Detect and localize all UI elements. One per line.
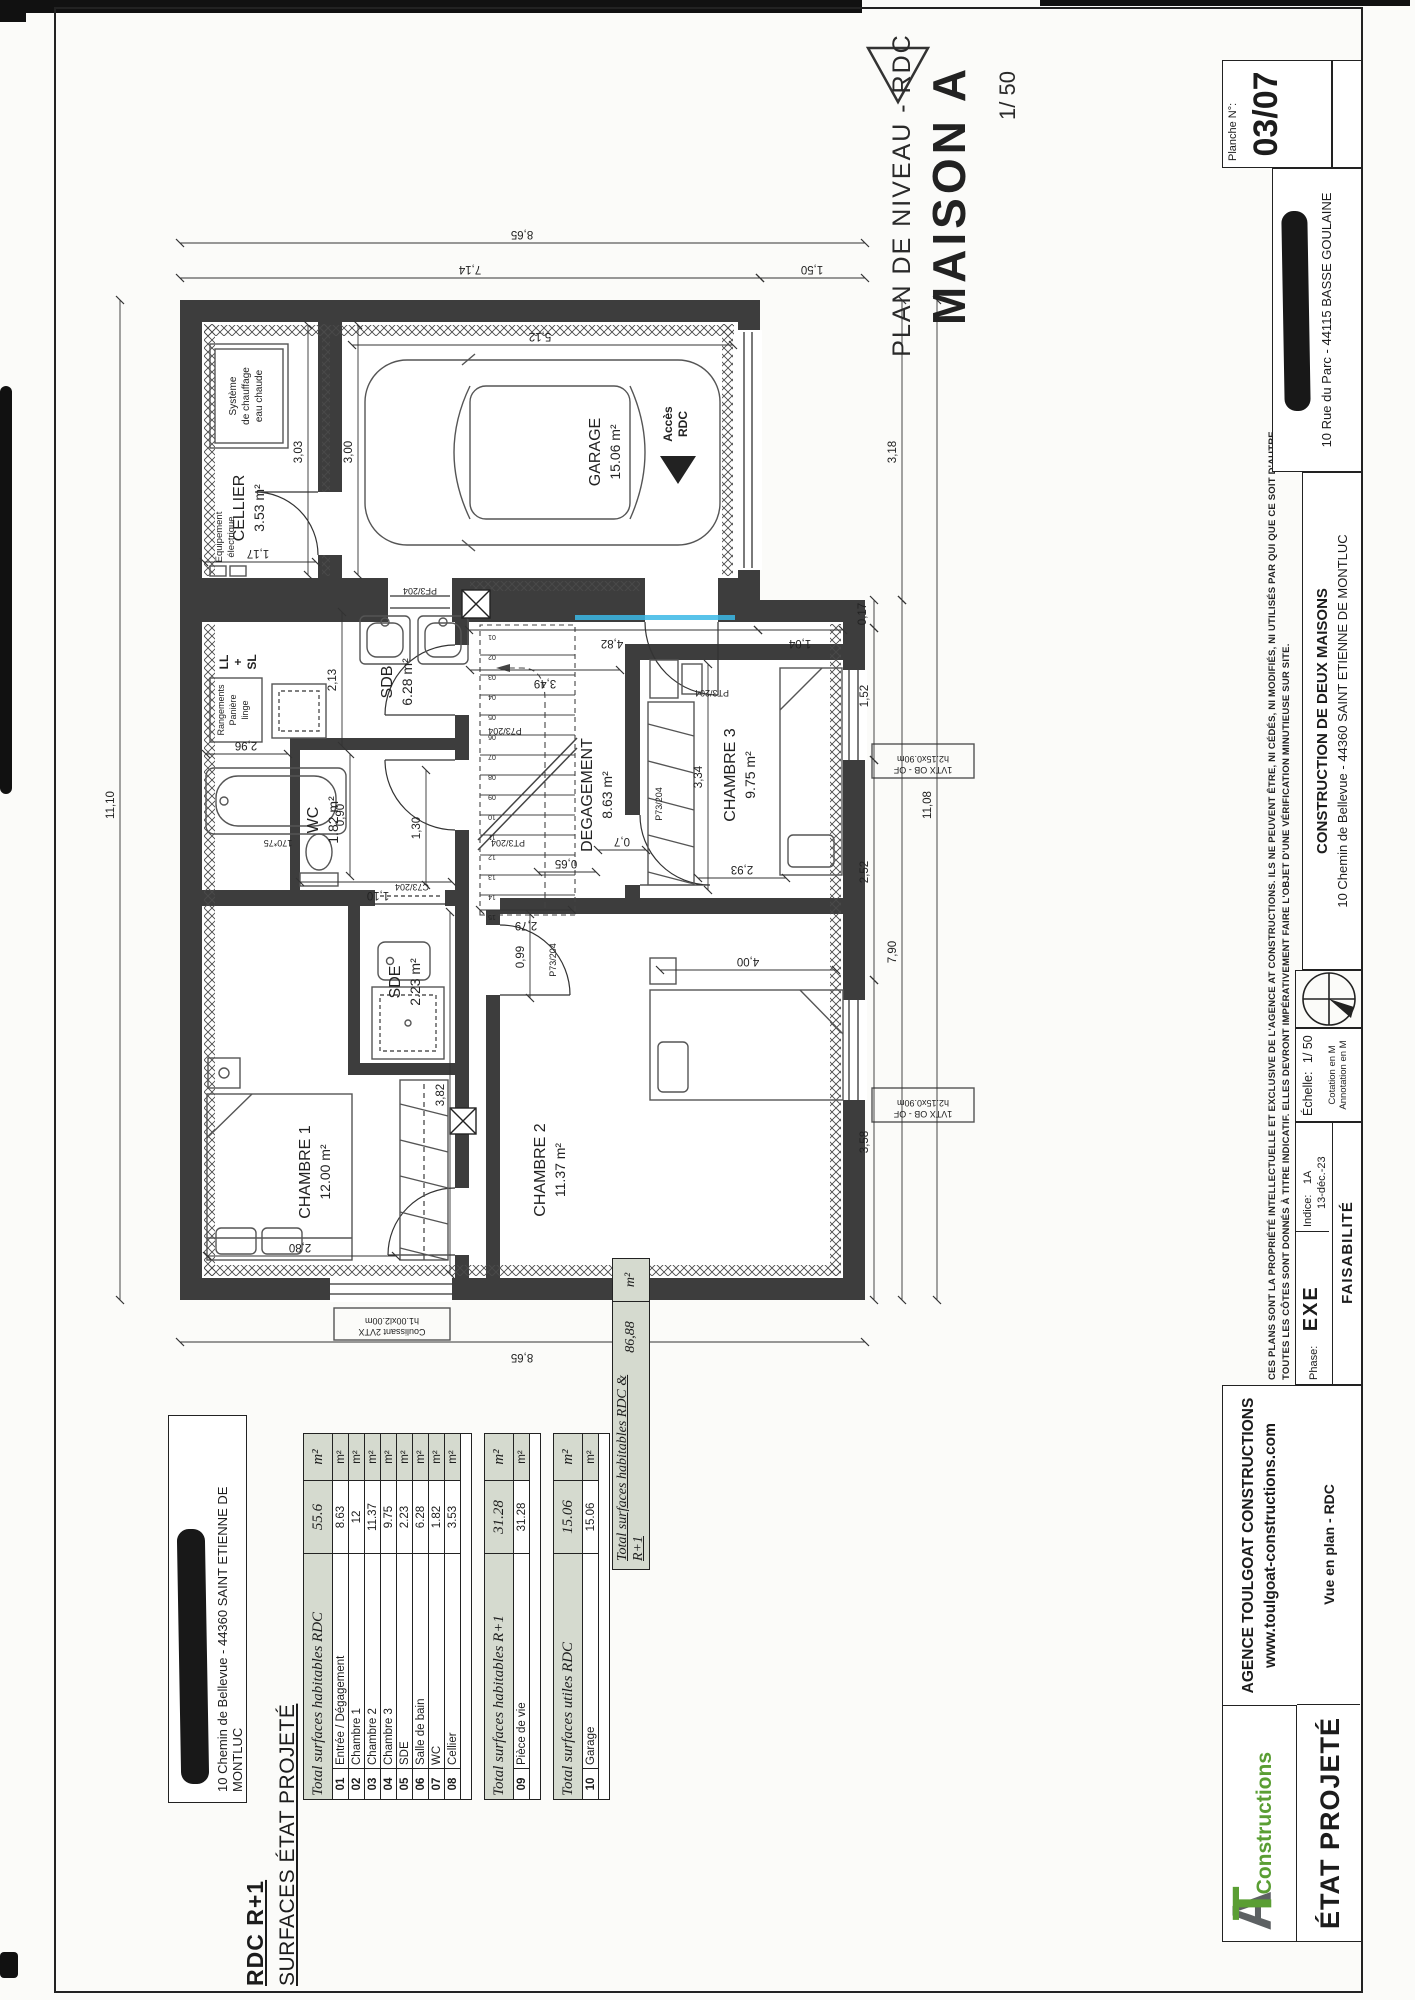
phase-value: EXE	[1300, 1285, 1322, 1331]
room-area-degagement: 8.63 m²	[599, 771, 615, 819]
dim-d512: 5,12	[529, 330, 551, 342]
dim-d714: 7,14	[458, 263, 481, 275]
grand-total-label: Total surfaces habitables RDC & R+1	[615, 1372, 647, 1569]
heading-rdc-r1: RDC R+1	[242, 1880, 269, 1986]
planche-number: 03/07	[1247, 61, 1286, 167]
titleblock-planche-box: Planche N°: 03/07	[1222, 60, 1332, 168]
walls-group	[180, 300, 865, 1300]
redacted-owner-name	[1281, 211, 1310, 411]
heater-label: Système	[228, 376, 239, 415]
dim-d130: 1,30	[411, 817, 423, 839]
table-row: 01Entrée / Dégagement8.63m²	[333, 1434, 349, 1800]
dim-d790: 7,90	[887, 941, 899, 963]
redacted-client-name	[177, 1529, 209, 1784]
duct-symbol-2	[450, 1108, 476, 1134]
stair-number: 11	[488, 833, 495, 840]
stair-number: 12	[488, 853, 496, 860]
tub-size-label: 170*75	[264, 838, 293, 848]
table-row: 10Garage15.06m²	[583, 1434, 599, 1800]
stair-number: 14	[488, 893, 496, 900]
heater-label: eau chaude	[254, 369, 265, 422]
dim-d482: 4,82	[601, 637, 623, 649]
window-label-coul: Coulissant 2VTX	[358, 1327, 425, 1337]
dim-d065: 0,65	[555, 857, 577, 869]
door-label-c73sde: C73/204	[395, 882, 429, 892]
project-address: 10 Chemin de Bellevue - 44360 SAINT ETIE…	[1335, 473, 1350, 969]
window-label-w1: 1VTX OB - OF	[893, 1109, 952, 1119]
dim-d865R: 8,65	[511, 228, 533, 240]
table-row: 04Chambre 39.75m²	[381, 1434, 397, 1800]
grand-total-unit: m²	[613, 1259, 649, 1302]
rangements-label: linge	[240, 700, 250, 719]
acces-rdc-label: Accès	[661, 406, 675, 442]
room-label-ch2: CHAMBRE 2	[532, 1123, 549, 1216]
project-title: CONSTRUCTION DE DEUX MAISONS	[1314, 473, 1331, 969]
room-label-garage: GARAGE	[587, 418, 604, 486]
ll-sl-label: LL	[217, 655, 231, 670]
dim-d334: 3,34	[693, 765, 705, 788]
vue-en-plan-label: Vue en plan - RDC	[1321, 1484, 1337, 1605]
stair-number: 02	[488, 653, 496, 660]
logo-cell: ATConstructions	[1223, 1705, 1297, 1941]
disclaimer-line-1: CES PLANS SONT LA PROPRIÉTÉ INTELLECTUEL…	[1266, 428, 1279, 1380]
elec-label: Equipement	[214, 511, 225, 562]
disclaimer-line-2: TOUTES LES CÔTES SONT DONNÉS À TITRE IND…	[1280, 643, 1293, 1380]
titleblock-echelle-box: Échelle: 1/ 50 Cotation en M Annotation …	[1295, 1028, 1362, 1122]
dim-d300: 3,00	[343, 441, 355, 463]
echelle-label: Échelle:	[1301, 1072, 1315, 1116]
dim-d117: 1,17	[247, 547, 269, 559]
table-row: 07WC1.82m²	[429, 1434, 445, 1800]
faisabilite-label: FAISABILITÉ	[1332, 1121, 1356, 1384]
rangements-label: Panière	[228, 694, 238, 725]
dim-d382: 3,82	[435, 1084, 447, 1106]
elec-label: électrique	[226, 516, 237, 557]
annotation-label: Annotation en M	[1338, 1029, 1349, 1121]
room-area-garage: 15.06 m²	[607, 424, 623, 480]
surfaces-tables: Total surfaces habitables RDC55.6m²01Ent…	[303, 1433, 622, 1800]
drawing-sheet: 11,108,657,141,508,6511,087,903,183,582,…	[0, 0, 1415, 2000]
titleblock-agency-box: ATConstructions AGENCE TOULGOAT CONSTRUC…	[1222, 1385, 1362, 1942]
client-box: 10 Chemin de Bellevue - 44360 SAINT ETIE…	[168, 1415, 247, 1803]
room-label-sdb: SDB	[379, 666, 396, 699]
stair-number: 08	[488, 773, 496, 780]
window-label-w1-size: h2.15x0.90m	[897, 1098, 949, 1108]
room-area-cellier: 3.53 m²	[251, 484, 267, 532]
titleblock-planche-footer	[1332, 60, 1362, 168]
cotation-label: Cotation en M	[1327, 1029, 1338, 1121]
room-area-sde: 2.23 m²	[407, 958, 423, 1006]
dim-d303: 3,03	[293, 441, 305, 463]
surfaces-table-1: Total surfaces habitables RDC55.6m²01Ent…	[303, 1433, 472, 1800]
duct-symbol-1	[462, 590, 490, 618]
logo-constructions: Constructions	[1253, 1752, 1276, 1894]
stair-number: 10	[488, 813, 496, 820]
surfaces-table-2: Total surfaces habitables R+131.28m²09Pi…	[484, 1433, 541, 1800]
dim-d150: 1,50	[801, 263, 823, 275]
echelle-value: 1/ 50	[1301, 1035, 1315, 1063]
stair-number: 05	[488, 713, 496, 720]
table-row: 08Cellier3.53m²	[445, 1434, 461, 1800]
stair-number: 07	[488, 753, 496, 760]
room-label-wc: WC	[305, 807, 322, 834]
dim-d1110: 11,10	[105, 791, 117, 819]
ll-sl-label: +	[231, 658, 245, 665]
indice-label: Indice:	[1302, 1195, 1314, 1227]
stair-number: 09	[488, 793, 496, 800]
grand-total-bar: Total surfaces habitables RDC & R+1 86,8…	[612, 1258, 650, 1570]
stair-numbers-group: 010203040506070809101112131415	[488, 633, 496, 920]
titleblock-project-box: CONSTRUCTION DE DEUX MAISONS 10 Chemin d…	[1302, 472, 1362, 970]
grand-total-value: 86,88	[623, 1302, 639, 1372]
blue-highlight-mark	[575, 615, 735, 620]
dim-d358: 3,58	[859, 1131, 871, 1153]
dim-d280: 2,80	[289, 1241, 311, 1253]
dim-d1108: 11,08	[922, 791, 934, 819]
dim-d104: 1,04	[788, 637, 811, 649]
room-label-degagement: DEGAGEMENT	[579, 738, 596, 852]
acces-rdc-label: RDC	[676, 411, 690, 437]
room-area-ch3: 9.75 m²	[742, 751, 758, 799]
scanned-plan-page: 11,108,657,141,508,6511,087,903,183,582,…	[0, 0, 1415, 2000]
dim-d017: 0,17	[857, 603, 869, 625]
maison-title: MAISON A	[922, 30, 976, 360]
agency-name-cell: AGENCE TOULGOAT CONSTRUCTIONS www.toulgo…	[1223, 1386, 1297, 1705]
plan-level-title: PLAN DE NIVEAU - RDC	[888, 30, 917, 360]
ll-sl-label: SL	[245, 654, 259, 669]
etat-projete-label: ÉTAT PROJETÉ	[1315, 1717, 1346, 1929]
stair-number: 13	[488, 873, 496, 880]
dim-d07: 0,7	[614, 835, 630, 847]
room-label-sde: SDE	[387, 966, 404, 999]
indice-value: 1A	[1302, 1171, 1314, 1184]
dim-d318: 3,18	[887, 441, 899, 463]
heater-label: de chauffage	[241, 367, 252, 425]
client-address: 10 Chemin de Bellevue - 44360 SAINT ETIE…	[215, 1422, 245, 1792]
stair-number: 06	[488, 733, 496, 740]
heading-surfaces: SURFACES ÉTAT PROJETÉ	[276, 1704, 300, 1986]
phase-label: Phase:	[1308, 1346, 1320, 1380]
dim-d296: 2,96	[235, 739, 257, 751]
titleblock-client-box: 10 Rue du Parc - 44115 BASSE GOULAINE	[1272, 168, 1362, 472]
room-label-ch3: CHAMBRE 3	[722, 728, 739, 821]
dim-d865L: 8,65	[511, 1351, 533, 1363]
dim-d110: 1,10	[367, 889, 389, 901]
dim-d400: 4,00	[737, 955, 759, 967]
stair-number: 15	[488, 913, 496, 920]
dim-d213: 2,13	[327, 669, 339, 691]
door-label-p73ch3: P73/204	[654, 787, 664, 821]
owner-address: 10 Rue du Parc - 44115 BASSE GOULAINE	[1319, 169, 1334, 471]
compass-cell	[1295, 970, 1362, 1028]
dim-d349: 3,49	[534, 677, 556, 689]
window-label-w2-size: h2.15x0.90m	[897, 754, 949, 764]
window-label-coul-size: h1.00xl2.00m	[365, 1316, 419, 1326]
dim-d152: 1,52	[859, 685, 871, 707]
room-area-sdb: 6.28 m²	[399, 658, 415, 706]
rangements-label: Rangements	[216, 684, 226, 736]
titleblock-phase-box: Phase: EXE Indice: 1A 13-déc.-23 FAISABI…	[1295, 1122, 1362, 1385]
stair-number: 04	[488, 693, 496, 700]
table-row: 02Chambre 112m²	[349, 1434, 365, 1800]
table-row: 03Chambre 211.37m²	[365, 1434, 381, 1800]
room-area-ch1: 12.00 m²	[317, 1144, 333, 1200]
vue-cell: Vue en plan - RDC	[1297, 1385, 1360, 1705]
window-label-w2: 1VTX OB - OF	[893, 765, 952, 775]
scale-label: 1/ 50	[995, 71, 1021, 120]
room-label-ch1: CHAMBRE 1	[297, 1125, 314, 1218]
indice-date: 13-déc.-23	[1316, 1121, 1328, 1209]
door-label-pt3ch3: PT3/204	[695, 688, 729, 698]
table-row: 06Salle de bain6.28m²	[413, 1434, 429, 1800]
phase-cell: Phase: EXE	[1300, 1285, 1323, 1380]
dim-d099: 0,99	[515, 946, 527, 968]
stair-number: 03	[488, 673, 496, 680]
agency-website: www.toulgoat-constructions.com	[1260, 1386, 1282, 1705]
surfaces-table-3: Total surfaces utiles RDC15.06m²10Garage…	[553, 1433, 610, 1800]
table-row: 05SDE2.23m²	[397, 1434, 413, 1800]
room-area-wc: 1.82 m²	[325, 796, 341, 844]
door-label-pf3: PF3/204	[403, 586, 437, 596]
door-label-p73ch2: P73/204	[548, 943, 558, 977]
stair-number: 01	[488, 633, 496, 640]
agency-name: AGENCE TOULGOAT CONSTRUCTIONS	[1238, 1386, 1260, 1705]
dim-d293: 2,93	[731, 863, 753, 875]
dim-d252: 2,52	[859, 861, 871, 883]
room-area-ch2: 11.37 m²	[552, 1143, 568, 1198]
planche-label: Planche N°:	[1223, 61, 1239, 167]
indice-cell: Indice: 1A 13-déc.-23	[1296, 1121, 1329, 1232]
dim-d279: 2,79	[515, 919, 537, 931]
table-row: 09Pièce de vie31.28m²	[514, 1434, 530, 1800]
